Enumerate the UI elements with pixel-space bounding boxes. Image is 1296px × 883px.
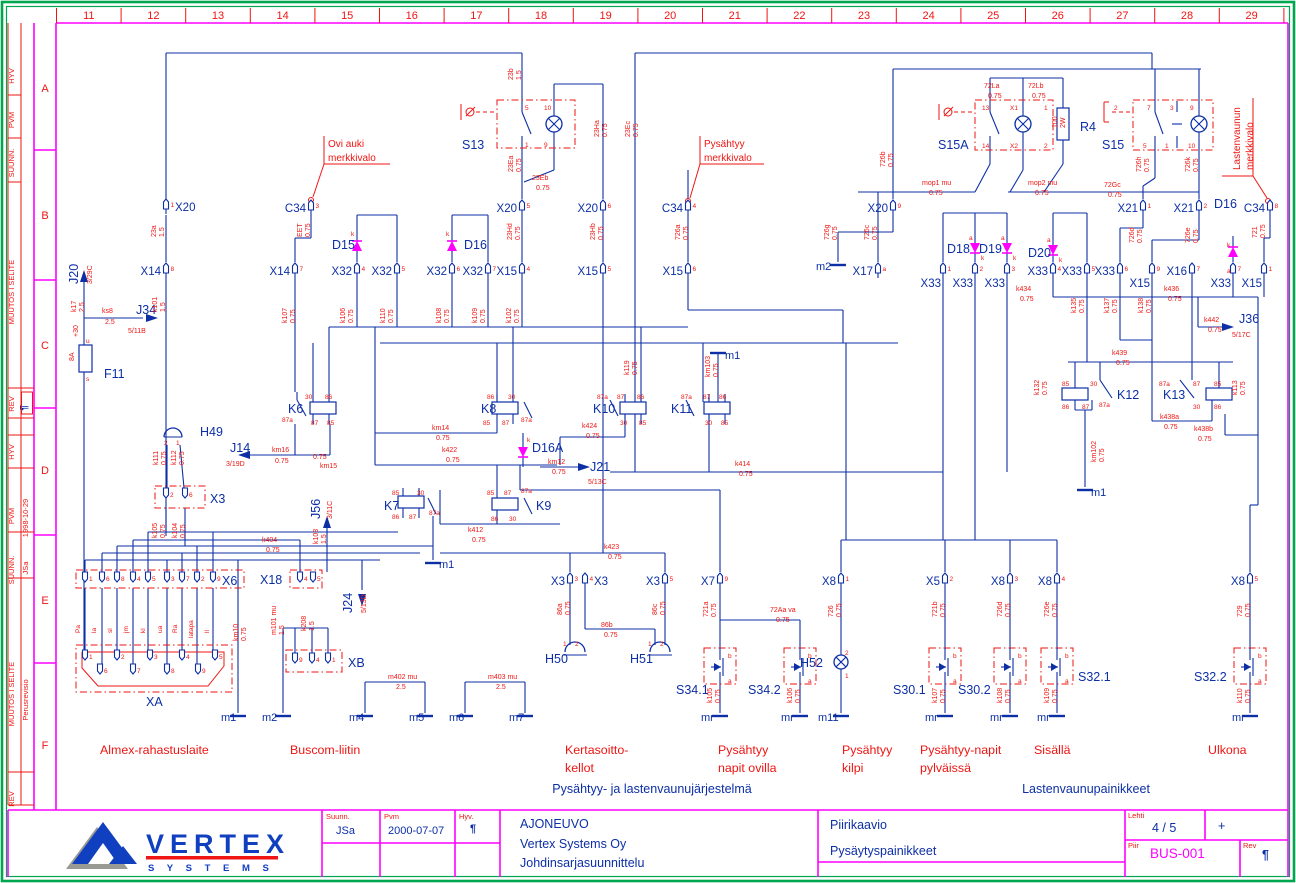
schematic-label: Ulkona (1208, 743, 1247, 757)
schematic-label: k109 (1044, 688, 1051, 703)
pin-number: 4 (362, 266, 366, 273)
connector-pin (1150, 263, 1155, 273)
schematic-label: S34.1 (676, 683, 709, 697)
connector-pin (1248, 573, 1253, 583)
schematic-label: km12 (548, 459, 565, 466)
schematic-label: 0.75 (515, 226, 522, 240)
schematic-label: K9 (536, 499, 551, 513)
schematic-label: Kertasoitto- (565, 743, 628, 757)
grid-row-label: D (41, 465, 49, 477)
connector-pin (164, 263, 169, 273)
connector-name: X33 (921, 278, 941, 290)
schematic-label: 0.75 (290, 309, 297, 323)
schematic-label: 2 (660, 641, 664, 648)
connector-name: X7 (701, 576, 715, 588)
schematic-label: m1 (1091, 487, 1106, 499)
schematic-label: m403 mu (488, 674, 517, 681)
connector-pin (601, 263, 606, 273)
schematic-label: 0.75 (1099, 448, 1106, 462)
pin-number: 7 (1238, 266, 1242, 273)
component-boundary (497, 100, 575, 148)
pin-number: 5 (152, 576, 156, 583)
schematic-label: k113 (1232, 380, 1239, 395)
schematic-label: 0.75 (313, 454, 327, 461)
schematic-label: merkkivalo (328, 153, 376, 164)
connector-name: X14 (141, 266, 162, 278)
schematic-label: a (1258, 678, 1262, 685)
schematic-label: 0.75 (472, 537, 486, 544)
connector-pin (183, 488, 188, 498)
schematic-label: 86b (601, 622, 613, 629)
schematic-label: 0.75 (241, 627, 248, 641)
schematic-label: 85 (392, 490, 400, 497)
connector-pin (601, 200, 606, 210)
pin-number: 6 (104, 668, 108, 675)
schematic-label: 23Ha (594, 120, 601, 137)
schematic-label: 87 (1193, 381, 1201, 388)
connector-name: X5 (926, 576, 940, 588)
sheet-plus: + (1218, 820, 1225, 833)
connector-pin (520, 200, 525, 210)
schematic-label: 85 (1214, 381, 1222, 388)
schematic-sheet: 11121314151617181920212223242526272829AB… (0, 0, 1296, 883)
schematic-label: 726e (1185, 227, 1192, 243)
pin-number: 3 (316, 203, 320, 210)
connector-pin (180, 572, 185, 582)
schematic-label: 30 (508, 394, 516, 401)
connector-name: X33 (1211, 278, 1231, 290)
schematic-label: 0.75 (1208, 327, 1222, 334)
sidebar-label: MUUTOS I SELITE (7, 260, 16, 324)
schematic-label: km16 (272, 447, 289, 454)
schematic-label: k (527, 437, 531, 444)
schematic-label: 1.5 (321, 534, 328, 544)
schematic-label: a (1065, 678, 1069, 685)
schematic-label: m1 (725, 350, 740, 362)
schematic-label: S15 (1102, 138, 1124, 152)
schematic-label: 86 (637, 394, 645, 401)
sidebar-label: PVM (7, 112, 16, 128)
schematic-label: 0.75 (180, 524, 187, 538)
pin-number: 5 (402, 266, 406, 273)
schematic-label: k108 (436, 308, 443, 323)
schematic-label: 0.75 (1193, 229, 1200, 243)
schematic-label: la (91, 628, 98, 633)
schematic-label: 0.75 (160, 524, 167, 538)
schematic-label: b (1018, 653, 1022, 660)
schematic-label: m6 (449, 712, 464, 724)
pin-number: 5 (527, 203, 531, 210)
schematic-label: ua (157, 625, 164, 633)
schematic-label: 30 (509, 516, 517, 523)
sidebar-label: Perusrevisio (21, 679, 30, 720)
connector-name: X32 (427, 266, 447, 278)
pin-number: 4 (304, 576, 308, 583)
schematic-label: km102 (1091, 441, 1098, 462)
wire (522, 112, 531, 134)
schematic-label: D19 (979, 242, 1002, 256)
schematic-label: k439 (1112, 350, 1127, 357)
date-label: Pvm (384, 813, 399, 821)
schematic-label: k442 (1204, 317, 1219, 324)
schematic-label: 85 (1062, 381, 1070, 388)
connector-name: X32 (332, 266, 352, 278)
schematic-label: s (86, 376, 90, 383)
schematic-label: 23Eb (532, 175, 548, 182)
schematic-label: K7 (384, 499, 399, 513)
schematic-label: 23Ea (508, 156, 515, 172)
schematic-label: k (1227, 242, 1231, 249)
schematic-label: X3 (210, 492, 225, 506)
schematic-label: D15 (332, 238, 355, 252)
pin-number: 6 (457, 266, 461, 273)
schematic-label: K8 (481, 402, 496, 416)
schematic-label: Pysähtyy- ja lastenvaunujärjestelmä (552, 782, 751, 796)
schematic-label: 72Gc (1104, 182, 1121, 189)
connector-name: X21 (1174, 203, 1194, 215)
schematic-label: 2.5 (79, 302, 86, 312)
schematic-label: 0.75 (832, 226, 839, 240)
wire (975, 164, 990, 192)
schematic-label: S32.2 (1194, 670, 1227, 684)
schematic-label: 726d (1129, 227, 1136, 243)
pin-number: 6 (1125, 266, 1129, 273)
schematic-label: 23a (151, 225, 158, 237)
wire (990, 112, 999, 134)
grid-column-label: 26 (1052, 10, 1064, 22)
schematic-label: m1 (221, 712, 236, 724)
schematic-label: 0.75 (1193, 158, 1200, 172)
schematic-label: 85 (487, 490, 495, 497)
schematic-label: mr (781, 712, 794, 724)
wire (1044, 164, 1063, 192)
schematic-label: 0.75 (1079, 299, 1086, 313)
schematic-label: 1 (1165, 143, 1169, 150)
connector-pin (395, 263, 400, 273)
connector-name: C34 (285, 203, 307, 215)
schematic-label: 0.75 (604, 632, 618, 639)
schematic-label: 0.75 (1032, 93, 1046, 100)
connector-name: X33 (953, 278, 973, 290)
schematic-label: 0.75 (1245, 689, 1252, 703)
schematic-label: Pysähtyy (842, 743, 893, 757)
schematic-label: Pysähtyy (718, 743, 769, 757)
connector-pin (164, 199, 169, 209)
wire (1143, 178, 1155, 186)
schematic-label: 5/11B (128, 328, 146, 335)
connector-name: X20 (497, 203, 517, 215)
project-line3: Johdinsarjasuunnittelu (520, 857, 644, 870)
project-line1: AJONEUVO (520, 818, 589, 831)
schematic-label: 5/17C (1232, 332, 1251, 339)
schematic-label: 0.75 (711, 603, 718, 617)
schematic-label: 0.75 (660, 601, 667, 615)
connector-name: X20 (578, 203, 598, 215)
connector-name: X14 (270, 266, 291, 278)
pin-number: 2 (1204, 203, 1208, 210)
schematic-label: 1.5 (279, 625, 286, 635)
schematic-label: 0.75 (1005, 603, 1012, 617)
schematic-label: 0.75 (888, 153, 895, 167)
grid-column-label: 21 (729, 10, 741, 22)
connector-name: X33 (1062, 266, 1082, 278)
schematic-label: 0.75 (586, 433, 600, 440)
schematic-label: 2 (845, 650, 849, 657)
pin-number: 1 (89, 576, 93, 583)
connector-name: C34 (662, 203, 684, 215)
component-body (1062, 388, 1088, 400)
callout-line (313, 164, 324, 197)
schematic-label: 13 (982, 105, 990, 112)
wire (1100, 380, 1112, 398)
schematic-label: 726d (997, 601, 1004, 617)
connector-pin (839, 573, 844, 583)
sidebar-label: SUUNN. (7, 149, 16, 178)
schematic-label: XA (146, 695, 163, 709)
connector-pin (310, 653, 315, 663)
schematic-label: R4 (1080, 120, 1096, 134)
schematic-label: X1 (1010, 105, 1018, 112)
sidebar-label: 1998-10-29 (21, 499, 30, 537)
grid-column-label: 24 (922, 10, 934, 22)
schematic-label: 87 (311, 420, 319, 427)
connector-pin (355, 263, 360, 273)
sidebar-label: JSa (21, 561, 30, 575)
sheet-value: 4 / 5 (1152, 822, 1176, 835)
schematic-label: Lastenvaunun (1232, 107, 1243, 170)
schematic-label: 5 (1143, 143, 1147, 150)
schematic-label: 30 (705, 420, 713, 427)
schematic-label: ll (204, 630, 211, 633)
schematic-label: k109 (472, 308, 479, 323)
pin-number: 8 (121, 576, 125, 583)
pin-number: 2 (170, 492, 174, 499)
schematic-label: 0.75 (348, 309, 355, 323)
pin-number: 4 (527, 266, 531, 273)
schematic-label: 8A (69, 352, 76, 361)
pin-number: 8 (1275, 203, 1279, 210)
schematic-label: Lastenvaunupainikkeet (1022, 782, 1150, 796)
connector-name: X33 (1028, 266, 1048, 278)
grid-column-label: 17 (470, 10, 482, 22)
sidebar-label: REV (7, 396, 16, 411)
schematic-label: 726h (1136, 156, 1143, 172)
schematic-label: 23b (508, 68, 515, 80)
connector-pin (83, 650, 88, 660)
connector-pin (1197, 200, 1202, 210)
schematic-label: 86c (652, 603, 659, 615)
component-body (310, 402, 336, 414)
approved-value: ¶ (470, 824, 476, 835)
callout-line (690, 164, 700, 198)
connector-pin (1268, 200, 1273, 210)
connector-name: X32 (372, 266, 392, 278)
connector-pin (876, 263, 881, 273)
schematic-label: 72La (984, 83, 1000, 90)
schematic-label: 726a (675, 224, 682, 240)
push-button-icon (1051, 663, 1058, 671)
connector-pin (98, 664, 103, 674)
schematic-label: 87a (429, 510, 440, 517)
schematic-label: k412 (468, 527, 483, 534)
connector-pin (146, 572, 151, 582)
component-body (1206, 388, 1232, 400)
schematic-label: Pa (75, 625, 82, 633)
sidebar-label: PVM (7, 508, 16, 524)
schematic-label: 0.75 (1198, 436, 1212, 443)
schematic-label: 726e (1044, 601, 1051, 617)
grid-column-label: 19 (599, 10, 611, 22)
schematic-label: 0.75 (632, 361, 639, 375)
schematic-label: napit ovilla (718, 761, 777, 775)
pin-number: 4 (316, 657, 320, 664)
connector-pin (1262, 263, 1267, 273)
connector-pin (83, 572, 88, 582)
connector-name: X8 (822, 576, 836, 588)
connector-name: X8 (1038, 576, 1052, 588)
pin-number: 9 (217, 576, 221, 583)
schematic-label: 0.75 (266, 547, 280, 554)
push-button-icon (939, 663, 946, 671)
schematic-label: 1 (563, 641, 567, 648)
connector-pin (1190, 263, 1195, 273)
schematic-label: K13 (1163, 388, 1185, 402)
connector-name: X15 (578, 266, 598, 278)
pin-number: 1 (948, 266, 952, 273)
schematic-label: S34.2 (748, 683, 781, 697)
schematic-label: 30 (1090, 381, 1098, 388)
schematic-label: m101 mu (271, 606, 278, 635)
schematic-label: 0.75 (552, 469, 566, 476)
schematic-label: 30 (417, 490, 425, 497)
schematic-label: 2 (1114, 105, 1118, 112)
pin-number: 1 (846, 576, 850, 583)
schematic-label: S32.1 (1078, 670, 1111, 684)
pin-number: 1 (1148, 203, 1152, 210)
schematic-label: 0.75 (1245, 603, 1252, 617)
signal-arrow-icon (578, 463, 590, 471)
component-body (398, 496, 424, 508)
schematic-label: 86a (557, 603, 564, 615)
schematic-label: ks8 (102, 308, 113, 315)
schematic-label: k422 (442, 447, 457, 454)
schematic-label: 0.75 (633, 123, 640, 137)
schematic-label: k138 (1138, 298, 1145, 313)
schematic-label: 0.75 (836, 603, 843, 617)
schematic-label: 87 (703, 394, 711, 401)
schematic-label: 87 (504, 490, 512, 497)
sidebar-label: HYV (7, 444, 16, 459)
grid-column-label: 23 (858, 10, 870, 22)
connector-name: X15 (1130, 278, 1150, 290)
pin-number: 4 (1062, 576, 1066, 583)
schematic-label: 85 (483, 420, 491, 427)
pin-number: 5 (608, 266, 612, 273)
schematic-label: 721b (932, 601, 939, 617)
pin-number: 5 (670, 576, 674, 583)
schematic-label: k (1013, 255, 1017, 262)
schematic-label: 87a (521, 417, 532, 424)
grid-row-label: E (41, 595, 48, 607)
connector-pin (309, 200, 314, 210)
grid-column-label: 13 (212, 10, 224, 22)
connector-pin (450, 263, 455, 273)
connector-pin (115, 572, 120, 582)
connector-pin (1085, 263, 1090, 273)
pin-number: 1 (89, 654, 93, 661)
connector-pin (1008, 573, 1013, 583)
schematic-label: 30 (620, 420, 628, 427)
connector-name: X32 (463, 266, 483, 278)
connector-name: X15 (1242, 278, 1262, 290)
schematic-label: 9 (1190, 105, 1194, 112)
schematic-label: k414 (735, 461, 750, 468)
schematic-label: merkkivalo (1245, 122, 1256, 170)
push-button-icon (1244, 663, 1251, 671)
schematic-label: k423 (604, 544, 619, 551)
grid-column-label: 11 (83, 10, 94, 22)
pin-number: 3 (1015, 576, 1019, 583)
pin-number: 1 (171, 202, 175, 209)
schematic-label: XB (348, 656, 365, 670)
schematic-label: 86 (1214, 404, 1222, 411)
schematic-label: 1.5 (159, 227, 166, 237)
schematic-label: k137 (1104, 298, 1111, 313)
pin-number: 7 (300, 266, 304, 273)
connector-pin (568, 573, 573, 583)
connector-pin (196, 664, 201, 674)
sheet-label: Lehti (1128, 812, 1144, 820)
schematic-label: 0.75 (446, 457, 460, 464)
schematic-label: 86 (487, 394, 495, 401)
rev-label: Rev (1243, 842, 1256, 850)
schematic-label: k (351, 231, 355, 238)
schematic-label: m5 (409, 712, 424, 724)
pin-number: 2 (980, 266, 984, 273)
pin-number: 7 (1197, 266, 1201, 273)
schematic-label: D18 (947, 242, 970, 256)
grid-column-label: 14 (276, 10, 288, 22)
approved-label: Hyv. (459, 813, 473, 821)
schematic-label: 0.75 (1260, 224, 1267, 238)
diode-icon (518, 447, 528, 457)
schematic-label: kilpi (842, 761, 863, 775)
schematic-label: Ovi auki (328, 139, 364, 150)
schematic-label: EET (297, 223, 304, 237)
pin-number: 8 (171, 668, 175, 675)
schematic-label: 0.75 (1042, 381, 1049, 395)
connector-name: X33 (985, 278, 1005, 290)
schematic-label: 0.75 (608, 554, 622, 561)
connector-pin (520, 263, 525, 273)
doc-name: Pysäytyspainikkeet (830, 845, 936, 858)
schematic-label: m11 (818, 712, 839, 724)
pin-number: 3 (154, 654, 158, 661)
schematic-label: mr (925, 712, 938, 724)
connector-pin (686, 263, 691, 273)
grid-column-label: 25 (987, 10, 999, 22)
schematic-label: 0.75 (305, 223, 312, 237)
connector-pin (1055, 573, 1060, 583)
connector-name: X33 (1095, 266, 1115, 278)
schematic-label: a (808, 678, 812, 685)
schematic-label: H51 (630, 652, 653, 666)
schematic-label: 86 (491, 516, 499, 523)
schematic-label: sl (107, 628, 114, 633)
schematic-label: 86 (719, 394, 727, 401)
schematic-label: J14 (230, 441, 250, 455)
designer-label: Suunn. (326, 813, 350, 821)
